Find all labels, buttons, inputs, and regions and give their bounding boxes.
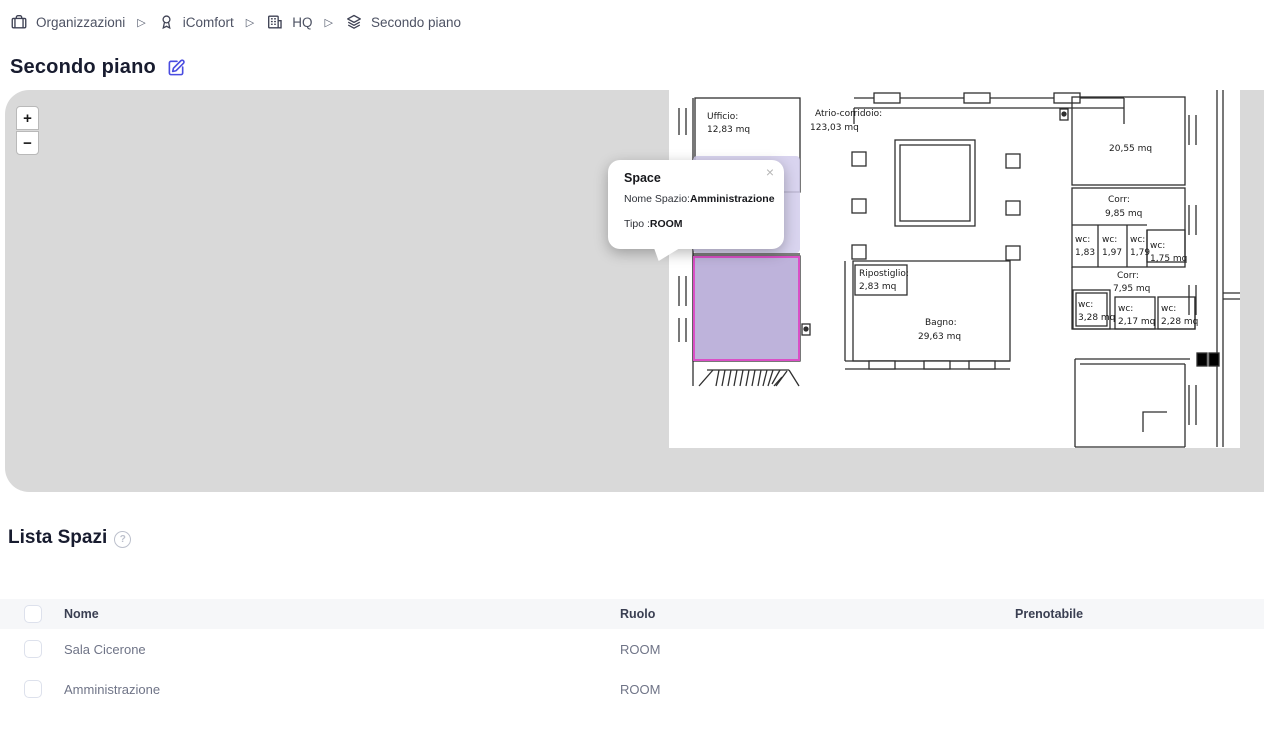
room-label: Ripostiglio:	[859, 269, 909, 279]
row-checkbox[interactable]	[24, 640, 42, 658]
breadcrumb-label: HQ	[292, 15, 312, 30]
table-header-row: Nome Ruolo Prenotabile	[0, 599, 1264, 629]
breadcrumb-label: Secondo piano	[371, 15, 461, 30]
map-zoom-controls: + −	[16, 106, 39, 155]
column-header-prenotabile: Prenotabile	[1015, 607, 1264, 621]
room-label: 1,79	[1130, 248, 1150, 258]
room-label: Corr:	[1108, 195, 1130, 205]
breadcrumb-item-organizzazioni[interactable]: Organizzazioni	[10, 13, 125, 31]
room-label: 2,28 mq	[1161, 317, 1198, 327]
tooltip-title: Space	[624, 171, 772, 185]
room-label: Atrio-corridoio:	[815, 109, 882, 119]
cell-ruolo: ROOM	[620, 682, 1015, 697]
organization-icon	[10, 13, 28, 31]
breadcrumb: Organizzazioni ▷ iComfort ▷ HQ ▷ Se	[0, 0, 1264, 31]
chevron-right-icon: ▷	[134, 16, 148, 29]
room-label: 123,03 mq	[810, 123, 859, 133]
floorplan[interactable]: Ufficio: 12,83 mq Atrio-corridoio: 123,0…	[669, 90, 1240, 448]
room-label: 3,28 mq	[1078, 313, 1115, 323]
room-label: 1,97	[1102, 248, 1122, 258]
room-label: wc:	[1078, 300, 1093, 310]
room-label: wc:	[1150, 241, 1165, 251]
room-label: Bagno:	[925, 318, 957, 328]
page-title: Secondo piano	[10, 56, 156, 79]
space-tooltip: × Space Nome Spazio:Amministrazione Tipo…	[608, 160, 784, 249]
room-label: Corr:	[1117, 271, 1139, 281]
table-row[interactable]: Sala Cicerone ROOM	[0, 629, 1264, 669]
zoom-in-button[interactable]: +	[16, 106, 39, 130]
room-label: 1,75 mq	[1150, 254, 1187, 264]
layers-icon	[345, 13, 363, 31]
chevron-right-icon: ▷	[322, 16, 336, 29]
selected-space-polygon[interactable]	[694, 257, 799, 360]
spaces-table: Nome Ruolo Prenotabile Sala Cicerone ROO…	[0, 599, 1264, 709]
cell-ruolo: ROOM	[620, 642, 1015, 657]
cell-nome: Amministrazione	[64, 682, 620, 697]
room-label: 1,83	[1075, 248, 1095, 258]
room-label: wc:	[1161, 304, 1176, 314]
room-label: wc:	[1102, 235, 1117, 245]
room-label: 12,83 mq	[707, 125, 750, 135]
room-label: 9,85 mq	[1105, 209, 1142, 219]
cell-nome: Sala Cicerone	[64, 642, 620, 657]
room-label: wc:	[1118, 304, 1133, 314]
building-icon	[266, 13, 284, 31]
breadcrumb-item-hq[interactable]: HQ	[266, 13, 312, 31]
tooltip-space-name: Nome Spazio:Amministrazione	[624, 193, 772, 205]
room-label: 29,63 mq	[918, 332, 961, 342]
column-header-ruolo: Ruolo	[620, 607, 1015, 621]
column-header-nome: Nome	[64, 607, 620, 621]
select-all-checkbox[interactable]	[24, 605, 42, 623]
edit-title-button[interactable]	[167, 58, 186, 77]
room-label: 2,83 mq	[859, 282, 896, 292]
room-label: 20,55 mq	[1109, 144, 1152, 154]
breadcrumb-item-secondo-piano[interactable]: Secondo piano	[345, 13, 461, 31]
room-label: 7,95 mq	[1113, 284, 1150, 294]
tooltip-close-icon[interactable]: ×	[766, 165, 774, 179]
map-canvas[interactable]: + −	[5, 90, 1264, 492]
breadcrumb-label: Organizzazioni	[36, 15, 125, 30]
breadcrumb-label: iComfort	[183, 15, 234, 30]
row-checkbox[interactable]	[24, 680, 42, 698]
award-icon	[158, 13, 175, 31]
table-row[interactable]: Amministrazione ROOM	[0, 669, 1264, 709]
zoom-out-button[interactable]: −	[16, 131, 39, 155]
help-icon[interactable]: ?	[114, 531, 131, 548]
room-label: wc:	[1075, 235, 1090, 245]
room-label: 2,17 mq	[1118, 317, 1155, 327]
breadcrumb-item-icomfort[interactable]: iComfort	[158, 13, 234, 31]
room-label: Ufficio:	[707, 112, 738, 122]
chevron-right-icon: ▷	[243, 16, 257, 29]
room-label: wc:	[1130, 235, 1145, 245]
edit-icon	[167, 65, 186, 80]
tooltip-space-type: Tipo :ROOM	[624, 218, 772, 230]
lista-spazi-title: Lista Spazi	[8, 527, 107, 549]
